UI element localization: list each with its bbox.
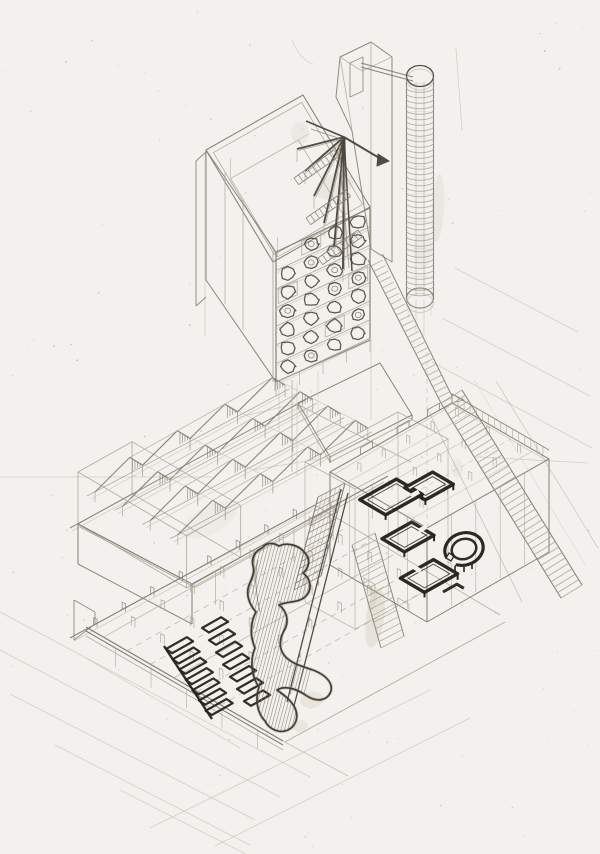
facade-hold xyxy=(352,309,365,321)
facade-hold xyxy=(304,293,319,305)
figure-blob xyxy=(130,535,346,748)
cell-rooms xyxy=(360,472,488,597)
banded-cylinder xyxy=(407,66,434,319)
blob-hatch xyxy=(130,535,346,748)
facade-hold xyxy=(327,339,340,350)
construction-lines xyxy=(0,40,592,854)
facade-hold xyxy=(327,301,341,313)
facade-hold xyxy=(304,256,318,269)
desk-right xyxy=(223,654,249,669)
desk-right xyxy=(209,629,235,644)
facade-hold xyxy=(327,263,343,277)
facade-hold xyxy=(304,350,317,362)
facade-hold xyxy=(352,272,366,285)
facade-hold xyxy=(351,327,365,340)
facade-hold xyxy=(305,275,320,288)
facade-hold xyxy=(328,282,341,295)
facade-hold xyxy=(351,289,365,303)
architectural-drawing xyxy=(0,0,600,854)
facade-hold xyxy=(304,312,319,325)
facade-hold xyxy=(282,267,296,281)
service-shaft xyxy=(336,42,413,262)
desk-right xyxy=(216,642,242,657)
drawing-canvas xyxy=(0,0,600,854)
central-gallery xyxy=(287,371,448,706)
facade-hold xyxy=(303,331,318,344)
facade-hold xyxy=(280,305,296,318)
desk-right xyxy=(202,617,228,632)
facade-hold xyxy=(281,360,296,374)
